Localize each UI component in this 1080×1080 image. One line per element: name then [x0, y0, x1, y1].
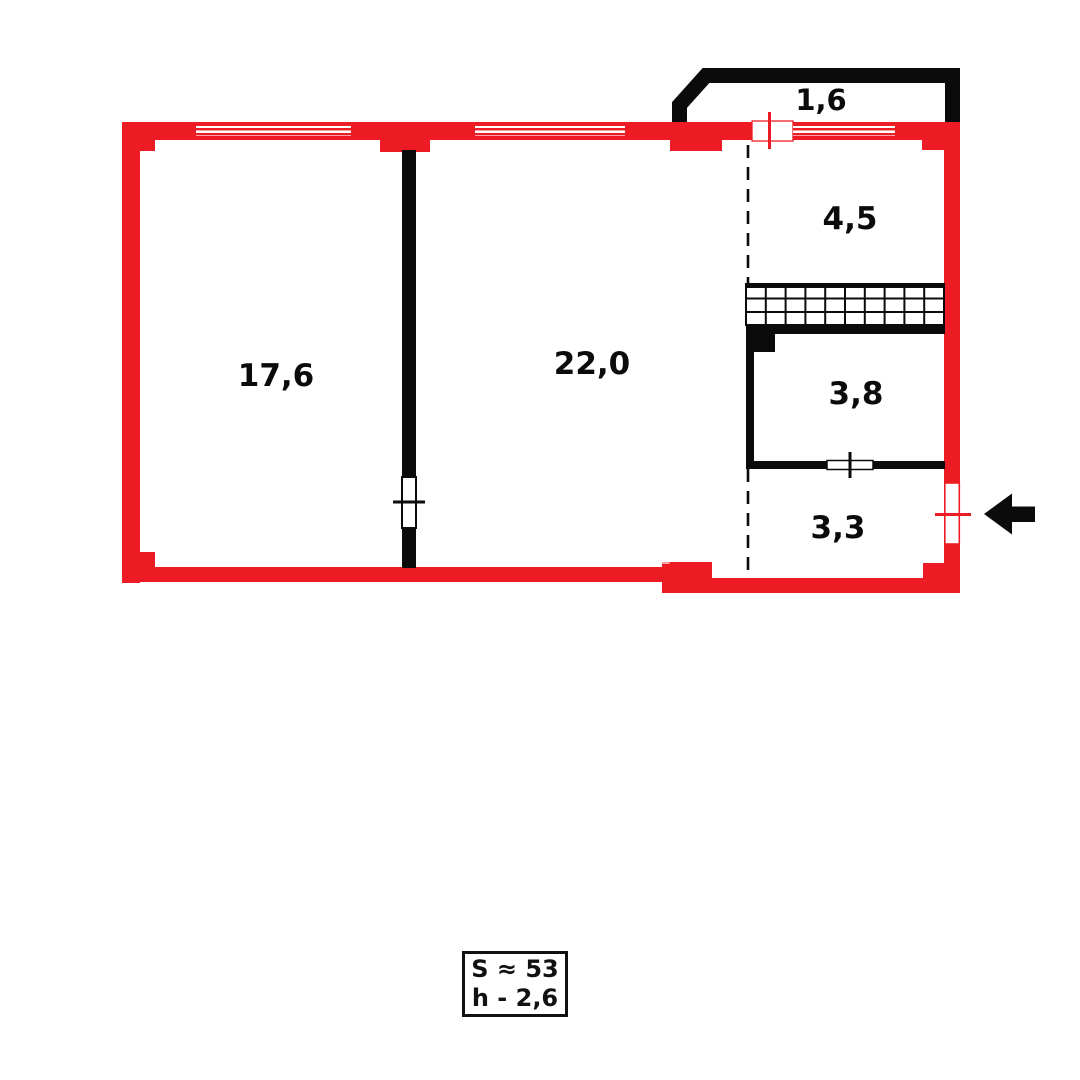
balcony-door — [752, 112, 793, 149]
window-3 — [793, 122, 895, 140]
entrance-arrow-icon — [984, 494, 1035, 535]
room-label-entry: 3,3 — [811, 510, 866, 546]
window-1 — [196, 122, 351, 140]
wardrobe-grid — [746, 284, 944, 325]
wall-bottom-left — [122, 567, 712, 582]
wall-left — [122, 122, 140, 583]
pier-top-balcony — [670, 140, 722, 151]
room-label-kitchen: 4,5 — [823, 201, 878, 237]
windows — [196, 112, 895, 149]
info-box: S ≈ 53 h - 2,6 — [462, 951, 568, 1017]
floor-plan-drawing — [0, 0, 1080, 1080]
ceiling-height-label: h - 2,6 — [472, 985, 558, 1013]
partition-wall — [393, 150, 425, 568]
room-label-balcony: 1,6 — [795, 83, 846, 117]
pier-top-right — [922, 140, 944, 150]
window-2 — [475, 122, 625, 140]
total-area-label: S ≈ 53 — [471, 956, 559, 984]
room-label-bathroom: 3,8 — [829, 376, 884, 412]
wall-bottom-step — [662, 562, 712, 593]
pier-bottom-right — [923, 563, 944, 579]
interior-door — [393, 477, 425, 528]
room-label-hall-room: 22,0 — [554, 346, 631, 382]
pier-top-left — [138, 140, 155, 151]
bathroom-door — [827, 452, 873, 478]
room-label-living-room: 17,6 — [238, 358, 315, 394]
pier-bottom-left — [140, 552, 155, 567]
floor-plan-canvas: 17,6 22,0 1,6 4,5 3,8 3,3 knkz S ≈ 53 h … — [0, 0, 1080, 1080]
entrance-door — [935, 483, 971, 544]
